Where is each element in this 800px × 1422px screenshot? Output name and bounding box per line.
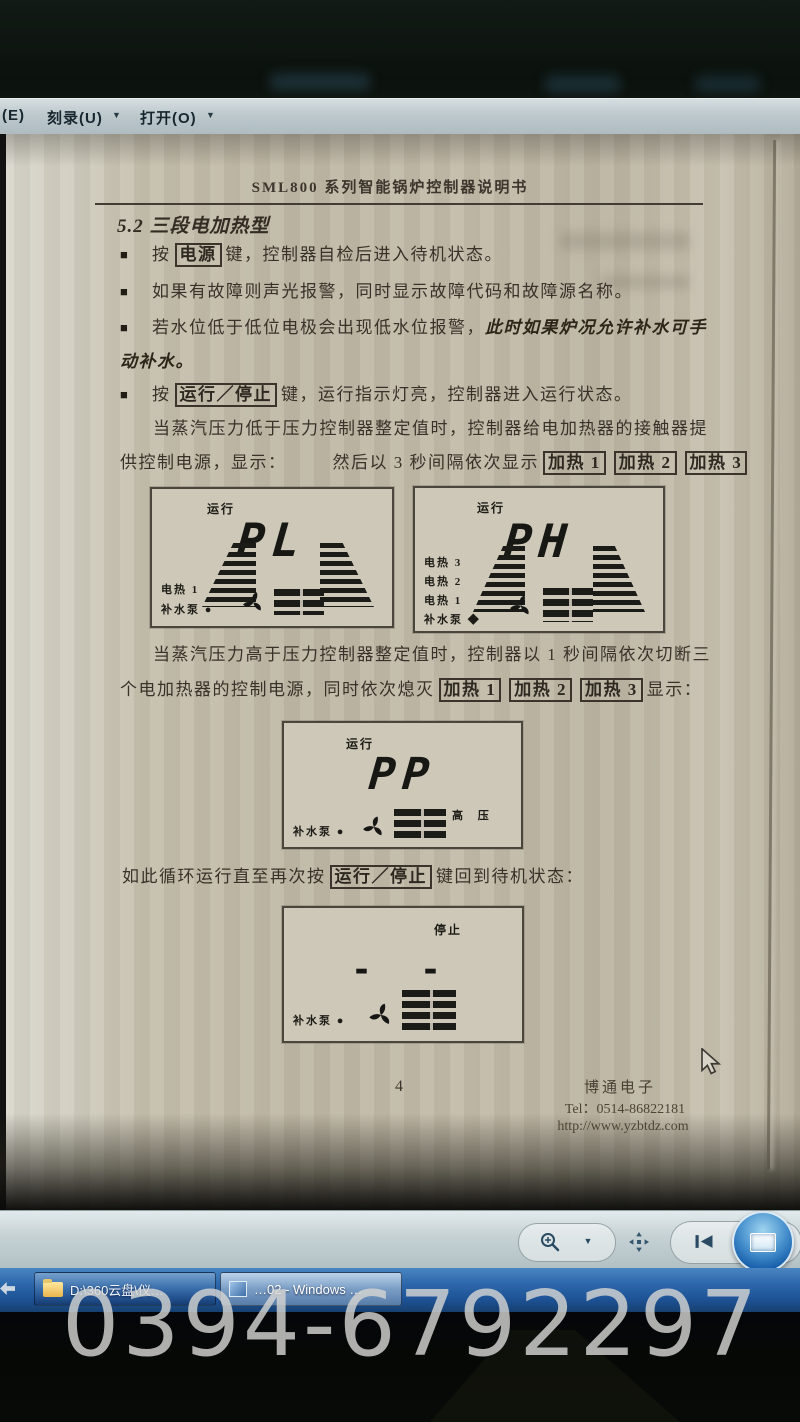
- watermark-phone-number: 0394-6792297: [62, 1272, 800, 1377]
- heater1-indicator-label: 电热 1: [161, 581, 199, 597]
- photo-viewer-menubar: (E) 刻录(U) ▼ 打开(O) ▼: [0, 98, 800, 136]
- menu-item-burn[interactable]: 刻录(U): [47, 107, 103, 128]
- bullet-low-water-cont: 动补水。: [120, 347, 194, 372]
- feed-pump-indicator-label: 补水泵 ●: [293, 823, 345, 839]
- company-url: http://www.yzbtdz.com: [516, 1119, 730, 1135]
- manual-title: SML800 系列智能锅炉控制器说明书: [0, 176, 780, 197]
- status-stop-label: 停止: [434, 921, 462, 938]
- menu-item-email-partial[interactable]: (E): [2, 107, 25, 124]
- feed-pump-indicator-label: 补水泵 ●: [161, 601, 213, 617]
- boiler-segment-stack: [274, 589, 324, 615]
- chevron-down-icon[interactable]: ▼: [112, 110, 121, 120]
- screen-glint: [270, 74, 370, 90]
- bullet-low-water: ■若水位低于低位电极会出现低水位报警，此时如果炉况允许补水可手: [120, 313, 707, 338]
- power-key-box: 电源: [175, 243, 222, 267]
- zoom-dropdown-button[interactable]: ▼: [580, 1233, 596, 1249]
- magnifier-plus-icon: [539, 1231, 561, 1253]
- lcd-display-high-pressure: 运行 PH 电热 3 电热 2 电热 1 补水泵 ◆: [413, 486, 665, 633]
- heat3-key-box: 加热 3: [580, 678, 643, 702]
- section-heading: 5.2 三段电加热型: [117, 211, 270, 238]
- company-phone: Tel：0514-86822181: [520, 1098, 730, 1118]
- lcd-display-pp: 运行 PP 高 压 补水泵 ●: [282, 721, 523, 849]
- fit-to-window-button[interactable]: [626, 1229, 652, 1255]
- lcd-display-standby: 停止 - - 补水泵 ●: [282, 906, 524, 1043]
- chevron-down-icon[interactable]: ▼: [206, 110, 215, 120]
- bullet-power-key: ■按电源键，控制器自检后进入待机状态。: [120, 240, 503, 267]
- run-stop-key-box: 运行／停止: [175, 383, 278, 407]
- taskbar-edge-fragment-icon: [0, 1282, 15, 1295]
- previous-track-icon: [693, 1233, 715, 1250]
- bullet-square-icon: ■: [120, 387, 152, 403]
- lcd-digits: PL: [150, 513, 395, 567]
- high-pressure-indicator-label: 高 压: [452, 807, 495, 823]
- lcd-digits: - -: [284, 950, 522, 990]
- boiler-segment-stack: [402, 990, 456, 1030]
- heat3-key-box: 加热 3: [685, 451, 748, 475]
- slideshow-button[interactable]: [732, 1211, 794, 1273]
- paragraph-text: 如此循环运行直至再次按: [122, 867, 326, 886]
- ink-bleed-smudge: [560, 232, 690, 250]
- bullet-text-emphasis: 此时如果炉况允许补水可手: [485, 318, 707, 337]
- company-name: 博通电子: [520, 1076, 720, 1097]
- bullet-fault-alarm: ■如果有故障则声光报警，同时显示故障代码和故障源名称。: [120, 277, 633, 302]
- pump-fan-icon: [240, 589, 267, 616]
- previous-image-button[interactable]: [692, 1231, 716, 1251]
- chevron-down-icon: ▼: [584, 1236, 593, 1246]
- pump-fan-icon: [366, 1000, 396, 1030]
- title-rule: [95, 203, 703, 205]
- feed-pump-indicator-label: 补水泵 ◆: [424, 611, 481, 627]
- bullet-text: 键，控制器自检后进入待机状态。: [226, 245, 504, 264]
- photographed-screen: (E) 刻录(U) ▼ 打开(O) ▼ SML800 系列智能锅炉控制器说明书 …: [0, 0, 800, 1422]
- run-stop-key-box: 运行／停止: [330, 865, 433, 889]
- paragraph-high-pressure-line1: 当蒸汽压力高于压力控制器整定值时，控制器以 1 秒间隔依次切断三: [153, 640, 711, 665]
- lcd-display-low-pressure: 运行 PL 电热 1 补水泵 ●: [150, 487, 394, 628]
- paragraph-text: 显示：: [647, 680, 703, 699]
- paragraph-text: 供控制电源，显示：: [120, 453, 287, 472]
- paragraph-low-pressure-line1: 当蒸汽压力低于压力控制器整定值时，控制器给电加热器的接触器提: [153, 414, 708, 439]
- paragraph-high-pressure-line2: 个电加热器的控制电源，同时依次熄灭加热 1加热 2加热 3显示：: [120, 675, 702, 702]
- pump-fan-icon: [360, 813, 388, 841]
- paragraph-text: 然后以 3 秒间隔依次显示: [333, 453, 540, 472]
- screen-glint: [695, 76, 760, 92]
- paragraph-low-pressure-line2: 供控制电源，显示：然后以 3 秒间隔依次显示加热 1加热 2加热 3: [120, 448, 751, 475]
- heater3-indicator-label: 电热 3: [424, 554, 462, 570]
- menu-item-open[interactable]: 打开(O): [140, 107, 197, 128]
- feed-pump-indicator-label: 补水泵 ●: [293, 1012, 345, 1028]
- bullet-text: 按: [152, 245, 171, 264]
- heater2-indicator-label: 电热 2: [424, 573, 462, 589]
- bullet-text: 键，运行指示灯亮，控制器进入运行状态。: [281, 385, 633, 404]
- paragraph-text: 个电加热器的控制电源，同时依次熄灭: [120, 680, 435, 699]
- photo-viewer-controlbar: ▼: [0, 1210, 800, 1269]
- pump-fan-icon: [507, 592, 535, 620]
- zoom-button[interactable]: [538, 1230, 562, 1254]
- bullet-text: 按: [152, 385, 171, 404]
- page-number: 4: [395, 1078, 403, 1096]
- bullet-text: 若水位低于低位电极会出现低水位报警，: [152, 318, 485, 337]
- slideshow-screen-icon: [750, 1233, 776, 1252]
- monitor-top-reflection: [0, 0, 800, 98]
- boiler-segment-stack: [394, 809, 446, 839]
- actual-size-icon: [628, 1231, 650, 1253]
- folder-icon: [43, 1282, 63, 1297]
- boiler-segment-stack: [543, 588, 593, 622]
- heat2-key-box: 加热 2: [509, 678, 572, 702]
- bullet-text: 如果有故障则声光报警，同时显示故障代码和故障源名称。: [152, 282, 633, 301]
- heat2-key-box: 加热 2: [614, 451, 677, 475]
- lcd-digits: PP: [282, 749, 523, 800]
- zoom-control-group: [518, 1223, 616, 1262]
- bullet-run-stop-key: ■按运行／停止键，运行指示灯亮，控制器进入运行状态。: [120, 380, 633, 407]
- screen-glint: [545, 76, 620, 92]
- heat1-key-box: 加热 1: [439, 678, 502, 702]
- bullet-square-icon: ■: [120, 284, 152, 300]
- bullet-text-emphasis: 动补水。: [120, 352, 194, 371]
- bullet-square-icon: ■: [120, 247, 152, 263]
- heater1-indicator-label: 电热 1: [424, 592, 462, 608]
- bullet-square-icon: ■: [120, 320, 152, 336]
- paragraph-cycle: 如此循环运行直至再次按运行／停止键回到待机状态：: [122, 862, 584, 889]
- mouse-cursor-icon: [700, 1048, 722, 1075]
- paragraph-text: 键回到待机状态：: [436, 867, 584, 886]
- heat1-key-box: 加热 1: [543, 451, 606, 475]
